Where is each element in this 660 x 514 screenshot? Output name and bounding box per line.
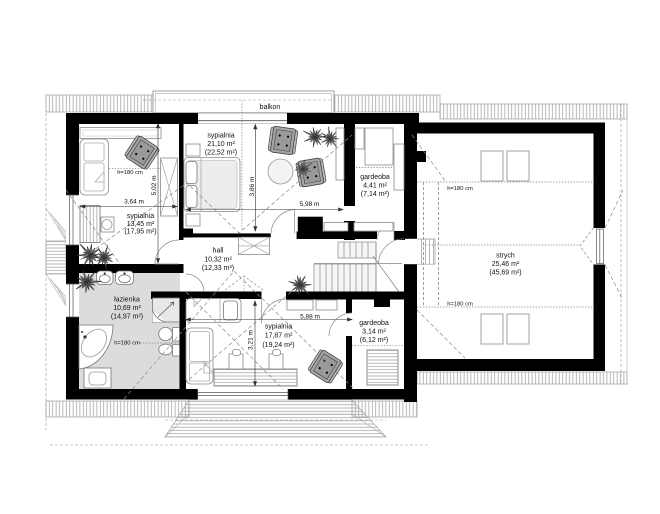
svg-text:hall: hall xyxy=(213,248,224,255)
svg-text:sypialnia: sypialnia xyxy=(207,133,234,140)
svg-text:gardeoba: gardeoba xyxy=(359,320,389,327)
svg-text:h=180 cm: h=180 cm xyxy=(447,302,473,308)
svg-text:3,14 m²: 3,14 m² xyxy=(362,329,386,336)
svg-text:(7,14 m²): (7,14 m²) xyxy=(361,191,389,198)
svg-text:(6,12 m²): (6,12 m²) xyxy=(360,337,388,344)
svg-text:(19,24 m²): (19,24 m²) xyxy=(262,342,294,349)
svg-text:5,02 m: 5,02 m xyxy=(151,175,158,195)
svg-text:13,45 m²: 13,45 m² xyxy=(127,221,155,228)
svg-text:(17,95 m²): (17,95 m²) xyxy=(124,229,156,236)
svg-text:sypialnia: sypialnia xyxy=(127,213,154,220)
svg-text:h=180 cm: h=180 cm xyxy=(447,186,473,192)
svg-text:3,21 m: 3,21 m xyxy=(247,330,254,350)
svg-text:10,69 m²: 10,69 m² xyxy=(113,305,141,312)
svg-text:4,41 m²: 4,41 m² xyxy=(363,183,387,190)
svg-text:(22,52 m²): (22,52 m²) xyxy=(205,150,237,157)
svg-text:5,88 m: 5,88 m xyxy=(300,314,320,321)
svg-text:3,64 m: 3,64 m xyxy=(124,199,144,206)
svg-text:(14,97 m²): (14,97 m²) xyxy=(111,314,143,321)
svg-text:10,32 m²: 10,32 m² xyxy=(204,257,232,264)
svg-text:łazienka: łazienka xyxy=(114,297,140,304)
svg-text:(12,33 m²): (12,33 m²) xyxy=(202,265,234,272)
svg-text:sypialnia: sypialnia xyxy=(265,323,292,330)
svg-text:gardeoba: gardeoba xyxy=(360,174,390,181)
svg-text:(45,69 m²): (45,69 m²) xyxy=(489,270,521,277)
svg-text:h=180 cm: h=180 cm xyxy=(114,341,140,347)
svg-text:5,98 m: 5,98 m xyxy=(300,201,320,208)
svg-text:strych: strych xyxy=(496,253,515,260)
svg-text:21,10 m²: 21,10 m² xyxy=(207,141,235,148)
svg-text:3,86 m: 3,86 m xyxy=(249,177,256,197)
svg-text:25,46 m²: 25,46 m² xyxy=(492,261,520,268)
svg-text:balkon: balkon xyxy=(260,104,281,111)
svg-text:h=180 cm: h=180 cm xyxy=(117,170,143,176)
svg-text:17,87 m²: 17,87 m² xyxy=(265,332,293,339)
